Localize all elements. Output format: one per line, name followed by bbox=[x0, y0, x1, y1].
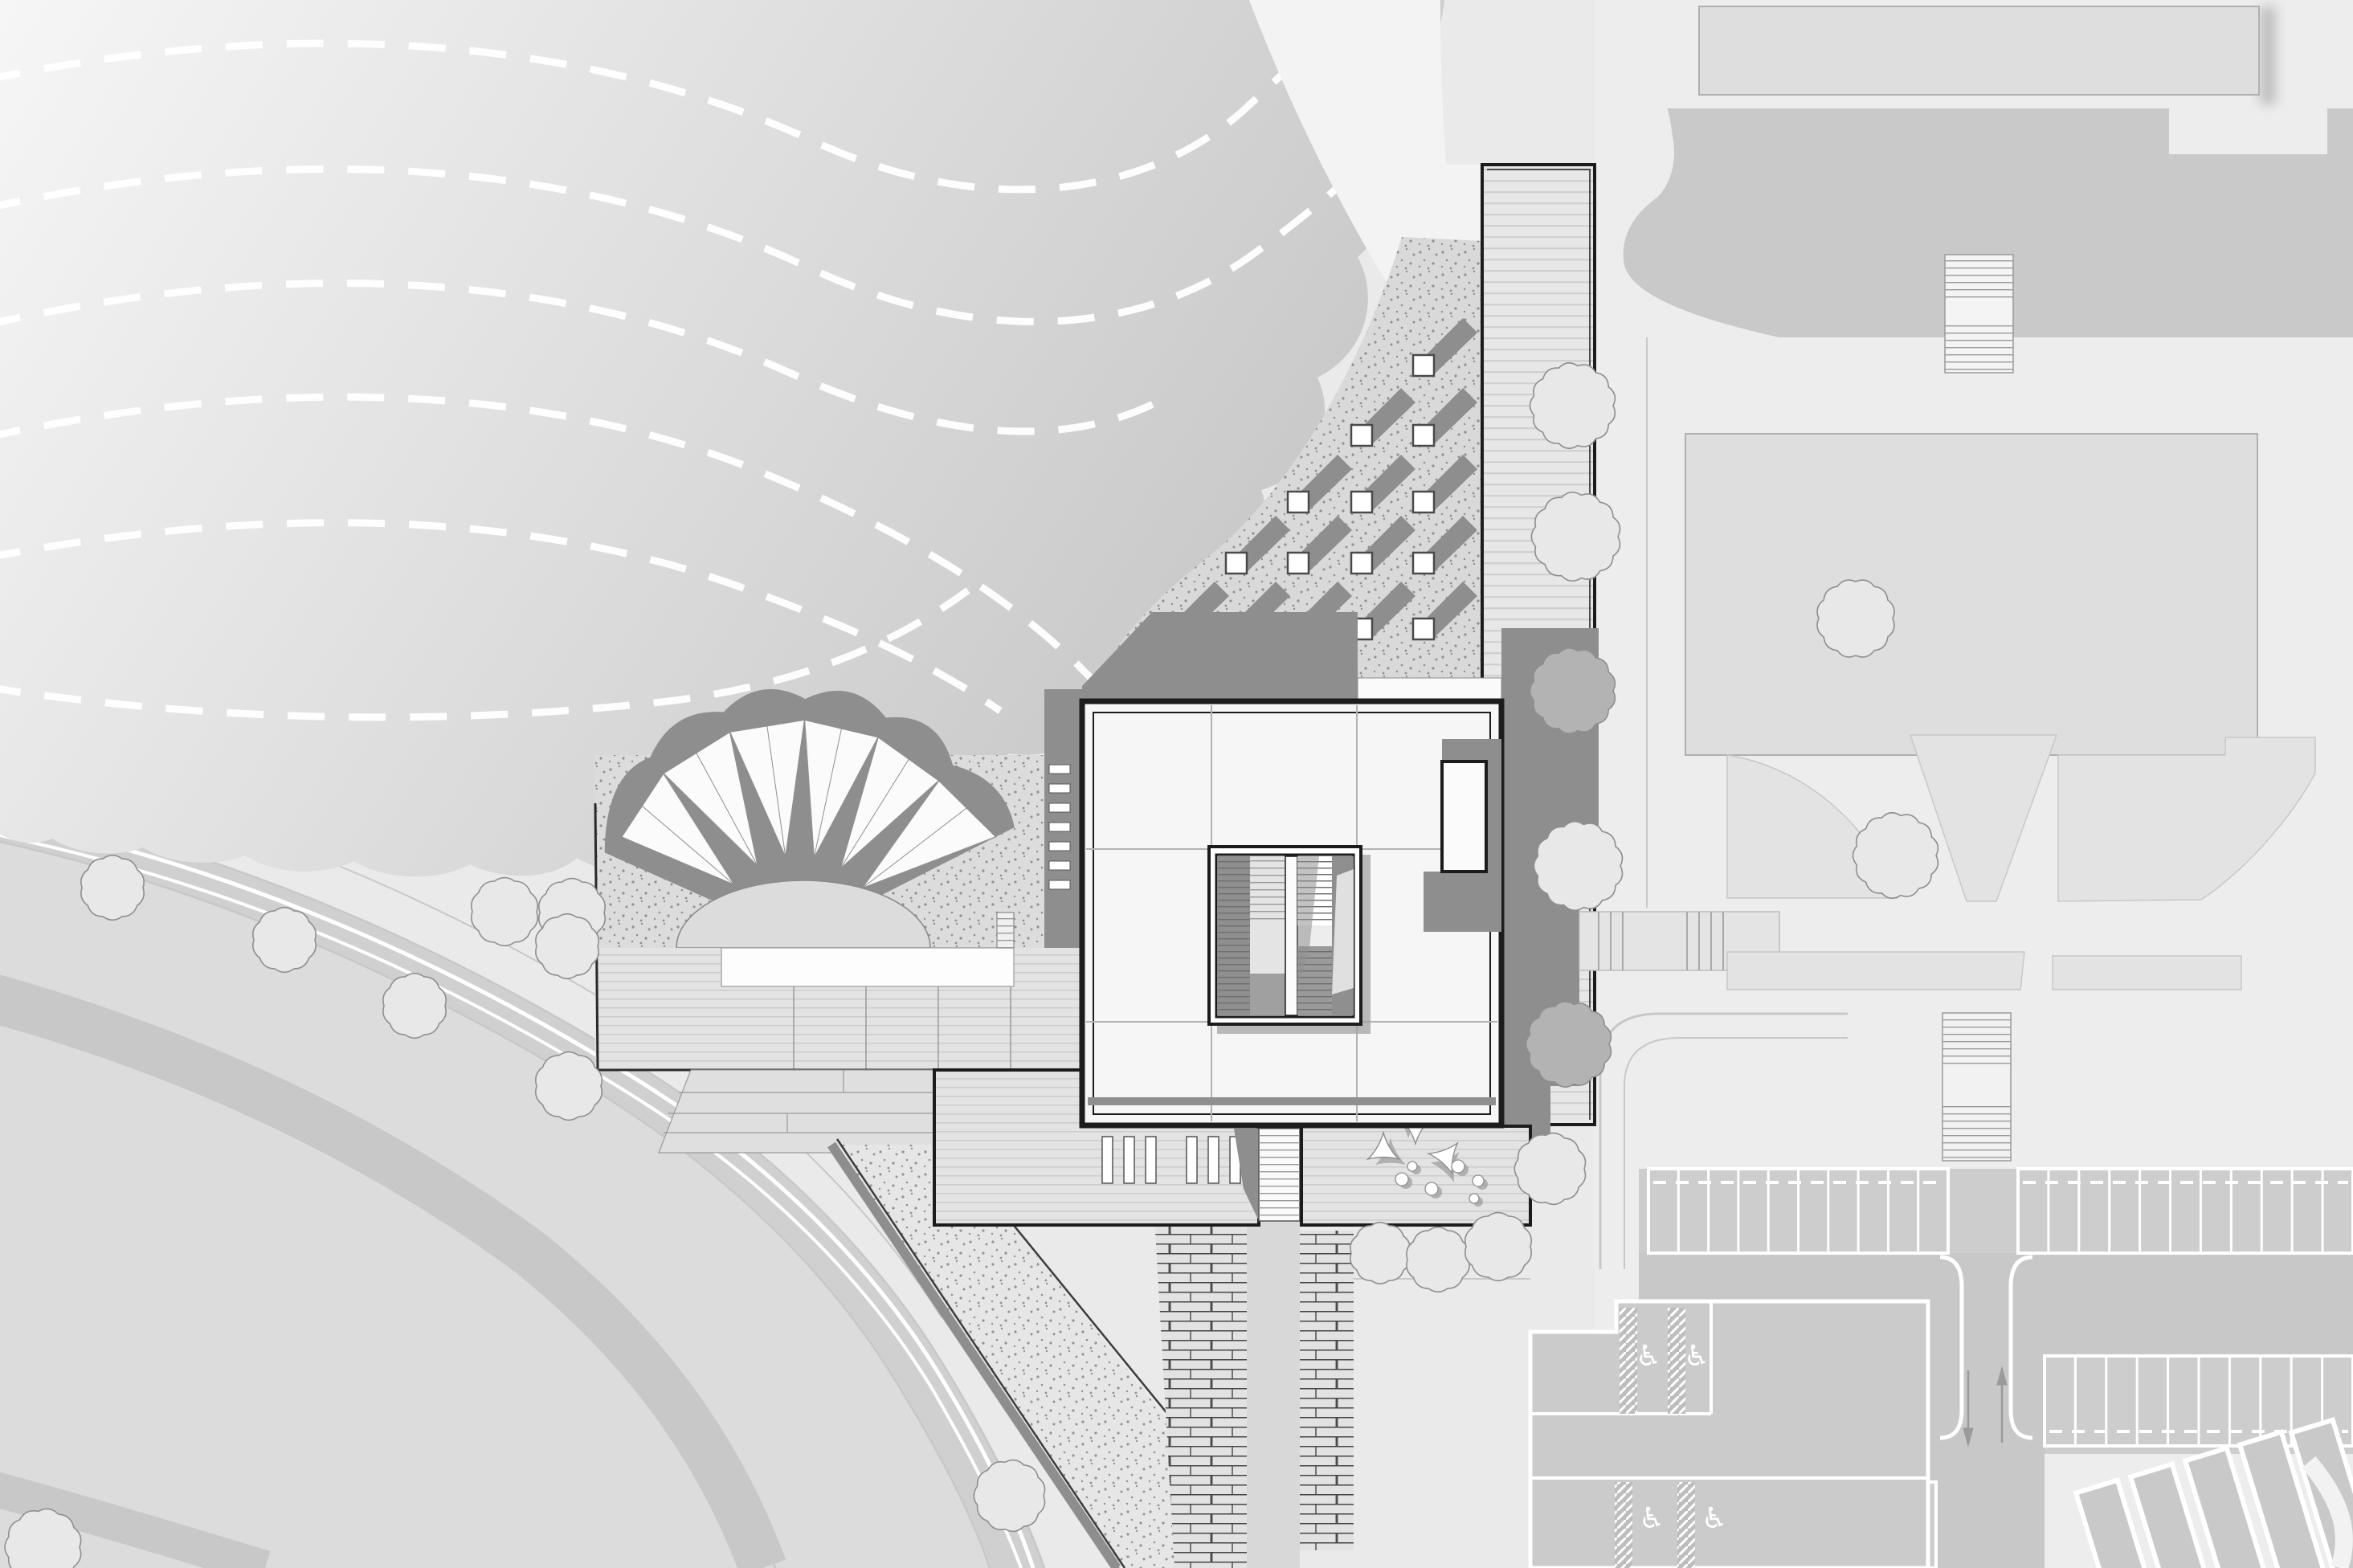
stair-north bbox=[1945, 255, 2013, 373]
forest-dark-blob bbox=[538, 80, 779, 209]
skylight-louver-bar bbox=[1146, 1137, 1156, 1183]
louver-vent bbox=[1049, 765, 1070, 774]
stool-circle bbox=[1425, 1182, 1438, 1195]
stool-circle bbox=[1395, 1173, 1408, 1186]
stool-circle bbox=[1469, 1194, 1479, 1203]
tree bbox=[383, 974, 446, 1039]
bollard-post bbox=[1288, 553, 1309, 574]
site-plan-page: ♿♿♿♿ bbox=[0, 0, 2353, 1568]
tree bbox=[1350, 1223, 1410, 1284]
lawn-island-band-east bbox=[2053, 956, 2241, 990]
roof-white-ledge bbox=[1358, 678, 1501, 701]
forest-dark-blob bbox=[675, 297, 900, 426]
skylight-louver-bar bbox=[1208, 1137, 1219, 1183]
path-gray-strip bbox=[1247, 1221, 1300, 1568]
louver-vent bbox=[1049, 842, 1070, 851]
main-building bbox=[1082, 612, 1501, 1125]
stool-circle bbox=[1452, 1160, 1464, 1173]
building-a-footprint bbox=[1699, 6, 2259, 95]
tree bbox=[472, 878, 537, 946]
accessible-hatch-stripes bbox=[1615, 1482, 1632, 1568]
skylight-louver-bar bbox=[1187, 1137, 1197, 1183]
canopy-east-wall-shadow bbox=[1044, 689, 1082, 948]
bollard-post bbox=[1413, 553, 1434, 574]
tree bbox=[1817, 580, 1894, 657]
south-parapet-shadow bbox=[1088, 1097, 1496, 1105]
accessible-hatch-stripes bbox=[1677, 1482, 1695, 1568]
bollard-post bbox=[1413, 355, 1434, 376]
stair-canopy-small bbox=[997, 913, 1014, 948]
stage-band-over bbox=[721, 948, 1014, 986]
accessible-hatch-stripes bbox=[1620, 1308, 1637, 1414]
parking-connector-drive bbox=[1928, 1356, 2045, 1568]
tree bbox=[253, 908, 316, 973]
wheelchair-icon: ♿ bbox=[1701, 1502, 1727, 1535]
forest-dark-blob bbox=[1101, 80, 1309, 209]
bollard-post bbox=[1351, 425, 1372, 446]
louver-vent bbox=[1049, 880, 1070, 889]
site-plan-drawing: ♿♿♿♿ bbox=[0, 0, 2353, 1568]
bollard-post bbox=[1413, 619, 1434, 639]
tree bbox=[1407, 1227, 1469, 1292]
wheelchair-icon: ♿ bbox=[1639, 1502, 1665, 1535]
court-wall bbox=[1285, 856, 1297, 1015]
louver-vent bbox=[1049, 823, 1070, 831]
tree bbox=[1465, 1213, 1531, 1281]
skylight-louver-bar bbox=[1102, 1137, 1113, 1183]
tree bbox=[536, 914, 598, 979]
brick-path-east-joints bbox=[1300, 1231, 1354, 1550]
stool-circle bbox=[1407, 1162, 1417, 1171]
skylight-louver-bar bbox=[1124, 1137, 1134, 1183]
courtyard bbox=[1209, 847, 1371, 1034]
stall-block bbox=[2018, 1169, 2353, 1253]
court-light-strip-shadow bbox=[1250, 974, 1285, 1015]
louver-vent bbox=[1049, 803, 1070, 812]
bollard-post bbox=[1351, 492, 1372, 512]
bollard-post bbox=[1226, 553, 1247, 574]
building-a-shadow bbox=[2260, 6, 2276, 104]
accessible-hatch-stripes bbox=[1668, 1308, 1685, 1414]
stool-circle bbox=[1473, 1175, 1484, 1186]
stall-block bbox=[1648, 1169, 1948, 1253]
lot-a-surface bbox=[1530, 1301, 1928, 1568]
wheelchair-icon: ♿ bbox=[1636, 1340, 1661, 1373]
forest-light-blob bbox=[16, 610, 273, 739]
bollard-post bbox=[1413, 492, 1434, 512]
forest-dark-blob bbox=[297, 289, 554, 434]
tree bbox=[536, 1052, 602, 1121]
forest-light-blob bbox=[185, 418, 490, 578]
louver-vent bbox=[1049, 784, 1070, 793]
tree bbox=[81, 855, 144, 921]
louver-vent bbox=[1049, 861, 1070, 870]
bollard-post bbox=[1413, 425, 1434, 446]
stair-south bbox=[1259, 1129, 1300, 1221]
building-b-footprint bbox=[1685, 434, 2257, 755]
forest-dark-blob bbox=[964, 185, 1205, 329]
wheelchair-icon: ♿ bbox=[1684, 1340, 1710, 1373]
road-band-notch bbox=[2169, 108, 2327, 154]
bollard-post bbox=[1288, 492, 1309, 512]
bollard-post bbox=[1351, 553, 1372, 574]
lawn-island-band-west bbox=[1727, 952, 2024, 990]
stair-mid bbox=[1942, 1013, 2011, 1161]
